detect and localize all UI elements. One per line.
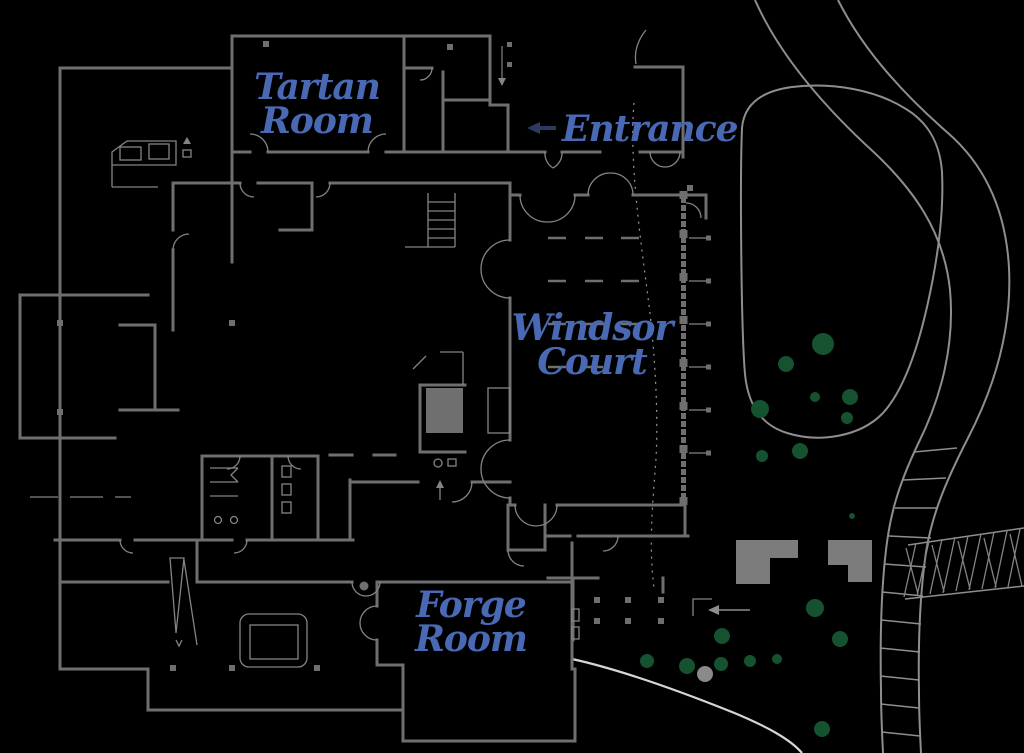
windsor-line1: Windsor <box>502 311 682 345</box>
room-label-forge: Forge Room <box>381 588 561 656</box>
forge-line2: Room <box>381 622 561 656</box>
tree-icon <box>772 654 782 664</box>
toilet-fixture <box>434 459 442 467</box>
tree-icon <box>812 333 834 355</box>
elevator-shaft <box>426 388 463 433</box>
room-label-tartan: Tartan Room <box>227 70 407 138</box>
landscape-island-outline <box>741 86 942 438</box>
ramp-wedge <box>170 558 197 646</box>
tree-icon <box>714 628 730 644</box>
tree-icon <box>810 392 820 402</box>
tree-icon <box>841 412 853 424</box>
tree-icon <box>714 657 728 671</box>
forge-line1: Forge <box>381 588 561 622</box>
entrance-text: Entrance <box>562 108 738 150</box>
windsor-line2: Court <box>502 345 682 379</box>
stairs <box>405 193 455 500</box>
patio-corner-bracket <box>693 599 712 616</box>
forge-columns <box>170 582 369 672</box>
entrance-arrow <box>527 122 556 134</box>
reception-desk <box>112 137 191 187</box>
interior-walls <box>55 183 688 710</box>
entrance-label: Entrance <box>562 108 738 150</box>
road-outer-curve <box>838 0 1009 753</box>
tree-icon <box>679 658 695 674</box>
tree-icon <box>806 599 824 617</box>
dimension-leader <box>498 46 506 86</box>
tree-icon <box>842 389 858 405</box>
tartan-line2: Room <box>227 104 407 138</box>
tree-icon <box>849 513 855 519</box>
site-structure-blob-left <box>736 540 798 584</box>
stage-platform <box>240 614 307 667</box>
wall-pier <box>488 388 510 433</box>
tree-icon <box>744 655 756 667</box>
tree-icon <box>756 450 768 462</box>
site-direction-arrow <box>708 605 750 615</box>
patio-columns <box>594 597 664 624</box>
road-inner-curve <box>755 0 951 753</box>
floor-plan-canvas: Tartan Room Entrance Windsor Court Forge… <box>0 0 1024 753</box>
tree-icon <box>814 721 830 737</box>
room-label-windsor: Windsor Court <box>502 311 682 379</box>
tree-icon <box>792 443 808 459</box>
tree-icon <box>778 356 794 372</box>
tree-icon <box>697 666 713 682</box>
site-structure-blob-right <box>828 540 872 582</box>
tartan-line1: Tartan <box>227 70 407 104</box>
colonnade-ticks <box>689 236 711 456</box>
tree-icon <box>640 654 654 668</box>
tree-icon <box>832 631 848 647</box>
tree-icon <box>751 400 769 418</box>
